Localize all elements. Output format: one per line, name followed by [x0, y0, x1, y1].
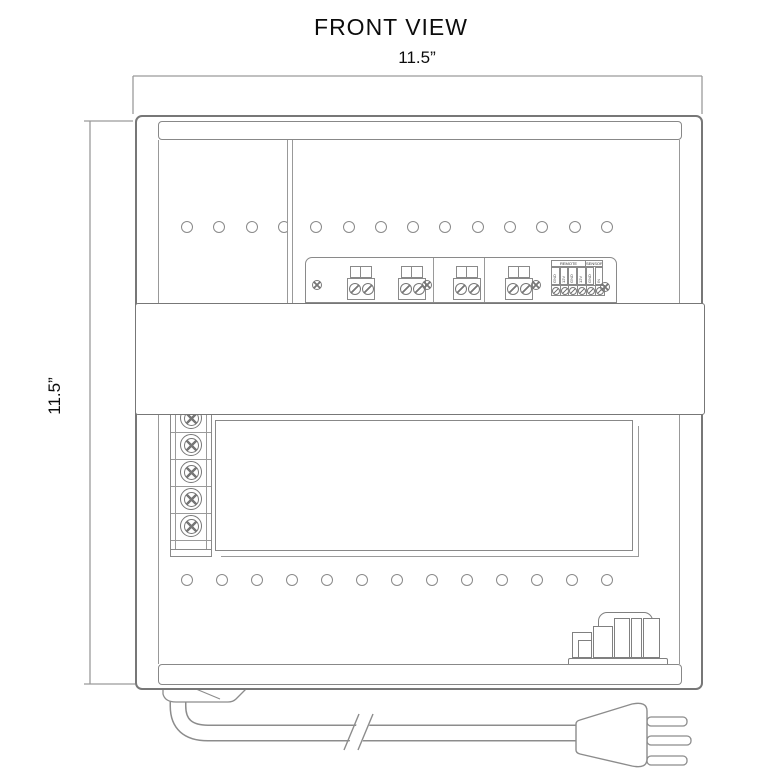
- terminal-cell-line: [171, 432, 211, 433]
- strip-header: SENSOR: [585, 260, 603, 267]
- enclosure-outline: REMOTESENSORGND12VGND12VGNDIN: [135, 115, 703, 690]
- screw-terminal-icon: [180, 461, 202, 483]
- plug-prong: [647, 717, 687, 726]
- power-module-fin: [631, 618, 642, 658]
- terminal-cell-line: [171, 513, 211, 514]
- left-terminal-strip-base: [170, 549, 212, 557]
- panel-divider-line: [287, 140, 293, 303]
- screw-terminal-icon: [180, 515, 202, 537]
- mount-screw-icon: [422, 280, 432, 290]
- terminal-slot: [361, 266, 372, 278]
- strip-pin: GND: [586, 267, 595, 285]
- plug-prong: [647, 736, 691, 745]
- terminal-cell-line: [171, 540, 211, 541]
- vent-hole: [286, 574, 298, 586]
- vent-hole: [321, 574, 333, 586]
- screw-icon: [362, 283, 374, 295]
- terminal-block-top: [505, 266, 533, 278]
- strip-pin-label: IN: [596, 276, 601, 283]
- strip-pin: GND: [551, 267, 560, 285]
- vent-hole: [461, 574, 473, 586]
- terminal-slot: [412, 266, 423, 278]
- strip-pin-label: 12V: [561, 276, 566, 283]
- screw-icon: [349, 283, 361, 295]
- terminal-block-body: [453, 278, 481, 300]
- height-dimension-line: [84, 121, 135, 684]
- vent-hole: [536, 221, 548, 233]
- plug-body: [576, 703, 647, 766]
- vent-hole: [356, 574, 368, 586]
- terminal-slot: [508, 266, 519, 278]
- left-terminal-strip: [170, 405, 212, 550]
- bottom-rail: [158, 664, 682, 685]
- terminal-slot: [467, 266, 478, 278]
- mount-screw-icon: [312, 280, 322, 290]
- screw-x-icon: [184, 465, 199, 480]
- terminal-slot: [519, 266, 530, 278]
- plug-prong: [647, 756, 687, 765]
- screw-icon: [400, 283, 412, 295]
- vent-hole: [601, 574, 613, 586]
- terminal-slot: [350, 266, 361, 278]
- strip-pin-label: GND: [569, 276, 574, 283]
- vent-hole: [472, 221, 484, 233]
- mount-screw-icon: [531, 280, 541, 290]
- vent-hole: [213, 221, 225, 233]
- strip-pin-label: GND: [552, 276, 557, 283]
- terminal-panel: REMOTESENSORGND12VGND12VGNDIN: [305, 257, 617, 303]
- screw-icon: [455, 283, 467, 295]
- vent-hole: [216, 574, 228, 586]
- panel-section-line: [433, 258, 434, 302]
- vent-hole: [601, 221, 613, 233]
- vent-hole: [375, 221, 387, 233]
- middle-cover-band: [135, 303, 705, 415]
- strip-pin: 12V: [560, 267, 569, 285]
- power-plug: [576, 703, 691, 766]
- strip-pin: GND: [568, 267, 577, 285]
- vent-hole: [569, 221, 581, 233]
- terminal-slot: [456, 266, 467, 278]
- terminal-block: [453, 266, 481, 300]
- vent-hole: [531, 574, 543, 586]
- front-view-diagram: FRONT VIEW 11.5” 11.5”: [0, 0, 782, 782]
- terminal-block-top: [347, 266, 375, 278]
- vent-hole: [246, 221, 258, 233]
- mount-screw-icon: [600, 282, 610, 292]
- vent-hole: [426, 574, 438, 586]
- vent-hole: [181, 574, 193, 586]
- strip-pin-label: GND: [587, 276, 592, 283]
- screw-icon: [507, 283, 519, 295]
- power-module-fin: [614, 618, 630, 658]
- power-module-block: [593, 626, 613, 658]
- cord-boot: [163, 688, 247, 702]
- remote-sensor-terminal-strip: REMOTESENSORGND12VGND12VGNDIN: [551, 260, 603, 300]
- strip-pin-label: 12V: [578, 276, 583, 283]
- terminal-block-top: [453, 266, 481, 278]
- vent-hole: [310, 221, 322, 233]
- terminal-cell-line: [171, 486, 211, 487]
- width-dimension-line: [133, 76, 702, 114]
- screw-icon: [468, 283, 480, 295]
- screw-terminal-icon: [180, 434, 202, 456]
- screw-x-icon: [184, 519, 199, 534]
- terminal-slot: [401, 266, 412, 278]
- terminal-block-top: [398, 266, 426, 278]
- vent-hole: [496, 574, 508, 586]
- vent-hole: [181, 221, 193, 233]
- terminal-block: [505, 266, 533, 300]
- display-window: [215, 420, 633, 551]
- vent-hole: [391, 574, 403, 586]
- screw-x-icon: [184, 492, 199, 507]
- strip-header: REMOTE: [551, 260, 586, 267]
- terminal-block-body: [347, 278, 375, 300]
- strip-pin: 12V: [577, 267, 586, 285]
- top-rail: [158, 121, 682, 140]
- power-cord: [178, 692, 585, 733]
- terminal-block: [347, 266, 375, 300]
- vent-hole: [407, 221, 419, 233]
- screw-x-icon: [184, 438, 199, 453]
- vent-hole: [566, 574, 578, 586]
- terminal-block-body: [505, 278, 533, 300]
- screw-terminal-icon: [180, 488, 202, 510]
- vent-hole: [439, 221, 451, 233]
- vent-hole: [343, 221, 355, 233]
- vent-hole: [504, 221, 516, 233]
- power-module-block: [578, 640, 592, 658]
- panel-section-line: [484, 258, 485, 302]
- screw-icon: [520, 283, 532, 295]
- power-module-fin: [643, 618, 660, 658]
- vent-hole: [251, 574, 263, 586]
- terminal-cell-line: [171, 459, 211, 460]
